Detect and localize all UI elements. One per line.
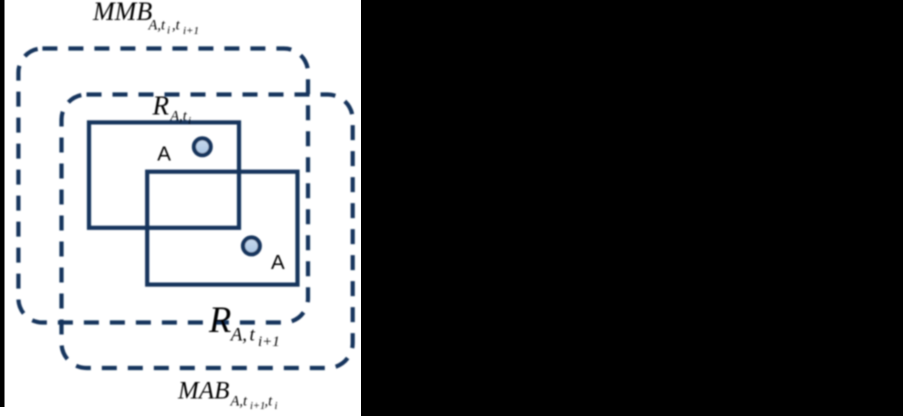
svg-text:i: i: [167, 24, 170, 36]
svg-text:i+1: i+1: [250, 401, 265, 412]
svg-text:R: R: [208, 299, 231, 340]
svg-text:A: A: [157, 142, 171, 165]
svg-text:t: t: [250, 325, 256, 346]
svg-text:A,t: A,t: [230, 394, 248, 410]
svg-text:MMB: MMB: [92, 0, 152, 26]
svg-text:,t: ,t: [172, 18, 181, 34]
svg-text:A: A: [271, 251, 285, 274]
svg-text:i+1: i+1: [183, 25, 199, 37]
svg-text:A,t: A,t: [169, 109, 187, 125]
svg-text:,t: ,t: [265, 394, 274, 410]
svg-text:i: i: [275, 401, 278, 412]
svg-text:R: R: [152, 91, 170, 121]
svg-text:i: i: [188, 115, 191, 127]
svg-text:A,t: A,t: [148, 18, 166, 34]
svg-text:MAB: MAB: [177, 377, 229, 404]
svg-text:A,: A,: [229, 325, 247, 346]
svg-text:i+1: i+1: [258, 334, 280, 350]
